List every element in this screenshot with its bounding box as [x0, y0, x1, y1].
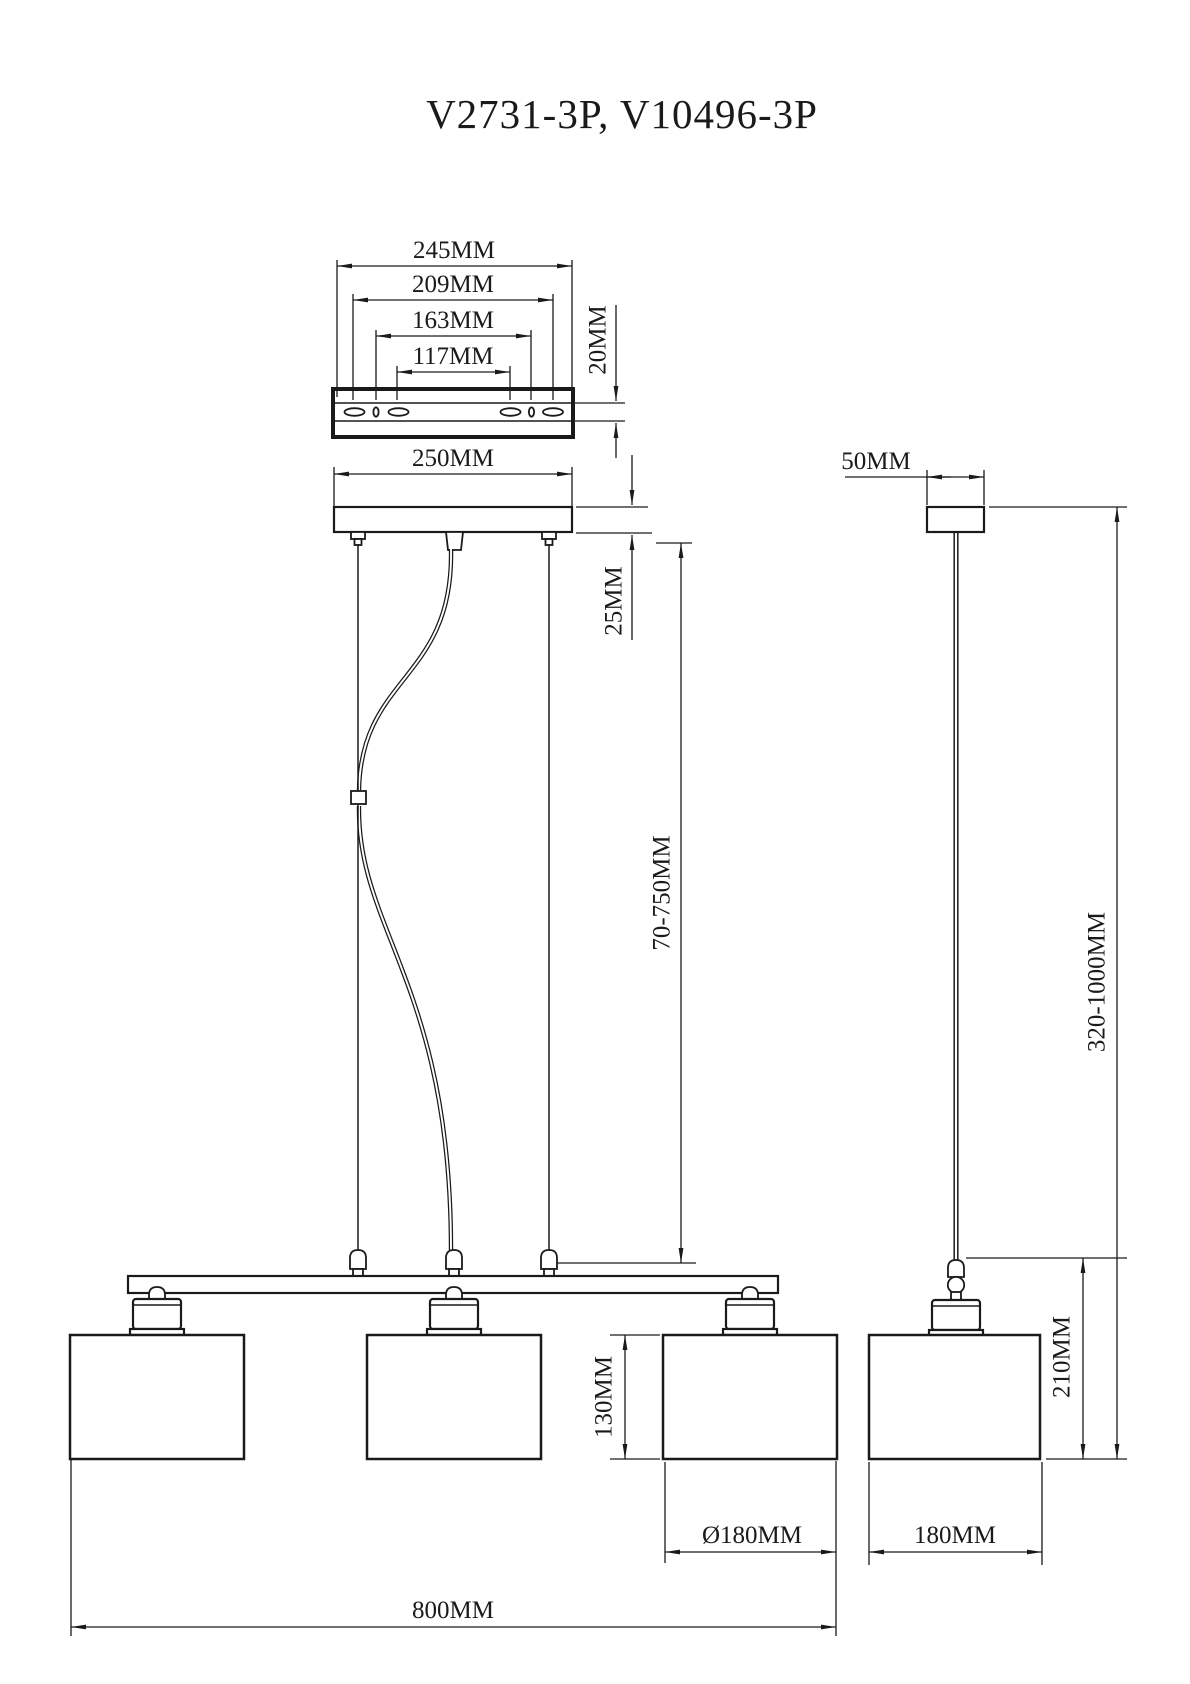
dim-label-20mm: 20MM [585, 305, 612, 374]
cable-gland-center [446, 532, 463, 550]
dim-label-320-1000mm: 320-1000MM [1084, 912, 1111, 1052]
screw-slot [389, 408, 409, 416]
dim-label-250mm: 250MM [412, 445, 494, 472]
dim-180mm: 180MM [869, 1462, 1042, 1565]
screw-slot [501, 408, 521, 416]
dim-label-117mm: 117MM [412, 343, 493, 370]
drawing-title: V2731-3P, V10496-3P [426, 91, 818, 137]
lamp-socket-right [723, 1287, 777, 1335]
wire-nipple-right [542, 532, 556, 545]
dim-117mm: 117MM [397, 343, 510, 400]
canopy-side [927, 507, 984, 532]
shade-side [869, 1335, 1040, 1459]
dim-label-800mm: 800MM [412, 1597, 494, 1624]
dim-label-209mm: 209MM [412, 271, 494, 298]
dim-label-50mm: 50MM [841, 448, 910, 475]
suspension-cord-side [954, 532, 958, 1260]
dim-label-245mm: 245MM [413, 237, 495, 264]
dim-130mm: 130MM [591, 1335, 660, 1459]
shade-left [70, 1335, 244, 1459]
shade-center [367, 1335, 541, 1459]
cord-grip [541, 1250, 557, 1278]
screw-slot [345, 408, 365, 416]
socket-assembly-side [929, 1260, 983, 1336]
dim-label-180mm: 180MM [914, 1522, 996, 1549]
side-view: 50MM 210MM 320-1000MM [841, 448, 1127, 1565]
dim-50mm: 50MM [841, 448, 984, 505]
center-power-cable [359, 549, 451, 1250]
dim-25mm: 25MM [576, 455, 652, 640]
dim-label-25mm: 25MM [601, 566, 628, 635]
mounting-bracket [333, 389, 573, 437]
dim-label-70-750mm: 70-750MM [649, 835, 676, 950]
dim-250mm: 250MM [334, 445, 572, 506]
front-view: 117MM 163MM 209MM 245MM 20MM [70, 237, 837, 1636]
dim-label-130mm: 130MM [591, 1356, 618, 1438]
screw-hole [529, 407, 534, 416]
shade-right [663, 1335, 837, 1459]
canopy-front [334, 507, 572, 550]
dim-dia-180mm: Ø180MM [665, 1461, 836, 1636]
cable-connector-bead [351, 791, 366, 804]
technical-drawing-sheet: V2731-3P, V10496-3P 117MM 163MM [0, 0, 1190, 1684]
lamp-socket-left [130, 1287, 184, 1335]
lamp-socket-center [427, 1287, 481, 1335]
cord-grip [446, 1250, 462, 1278]
cord-grip [350, 1250, 366, 1278]
dim-20mm: 20MM [575, 305, 625, 458]
dim-label-dia-180mm: Ø180MM [702, 1522, 802, 1549]
screw-hole [373, 407, 378, 416]
screw-slot [543, 408, 563, 416]
dim-label-163mm: 163MM [412, 307, 494, 334]
suspension-cords [351, 544, 549, 1251]
pendant-lamp-dimension-drawing: V2731-3P, V10496-3P 117MM 163MM [0, 0, 1190, 1684]
cord-grip [948, 1260, 964, 1277]
dim-label-210mm: 210MM [1049, 1316, 1076, 1398]
ball-joint [948, 1277, 964, 1293]
wire-nipple-left [351, 532, 365, 545]
dim-70-750mm: 70-750MM [556, 543, 696, 1263]
